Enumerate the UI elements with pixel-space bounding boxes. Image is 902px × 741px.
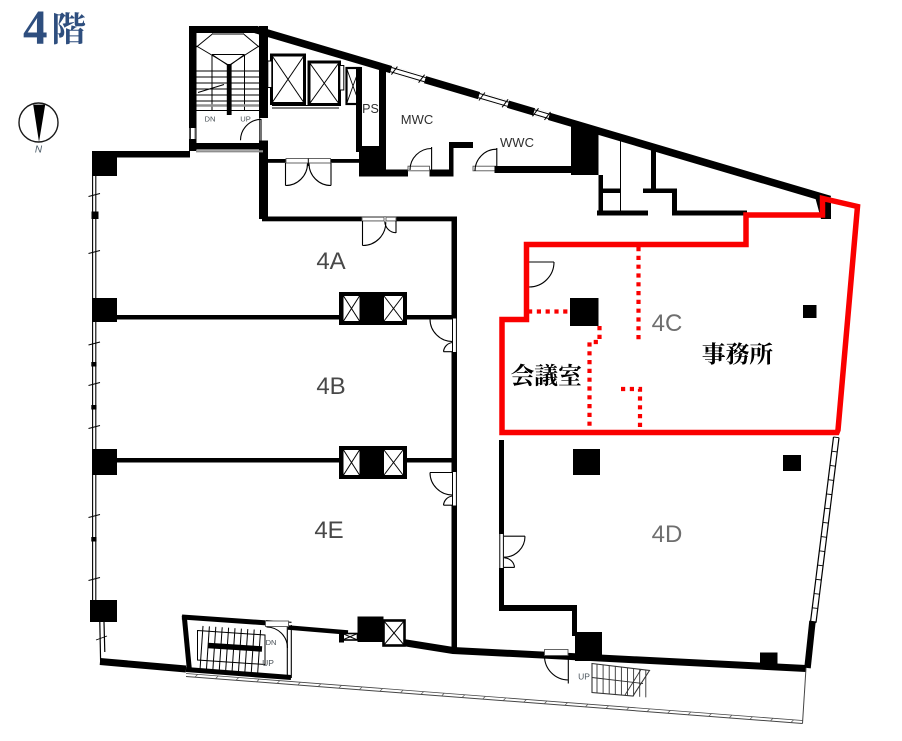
svg-text:PS: PS bbox=[362, 102, 379, 116]
svg-text:DN: DN bbox=[266, 638, 277, 647]
svg-text:UP: UP bbox=[262, 658, 274, 668]
svg-text:4B: 4B bbox=[316, 373, 345, 400]
svg-text:4E: 4E bbox=[314, 517, 343, 544]
svg-text:4A: 4A bbox=[316, 248, 345, 275]
svg-text:MWC: MWC bbox=[401, 112, 434, 127]
svg-text:4D: 4D bbox=[652, 521, 683, 548]
svg-text:4: 4 bbox=[23, 0, 48, 55]
svg-text:UP: UP bbox=[240, 115, 251, 124]
svg-text:WWC: WWC bbox=[500, 135, 534, 150]
svg-text:DN: DN bbox=[205, 115, 216, 124]
svg-text:4C: 4C bbox=[652, 310, 683, 337]
svg-text:N: N bbox=[35, 145, 43, 156]
svg-text:UP: UP bbox=[578, 672, 590, 682]
